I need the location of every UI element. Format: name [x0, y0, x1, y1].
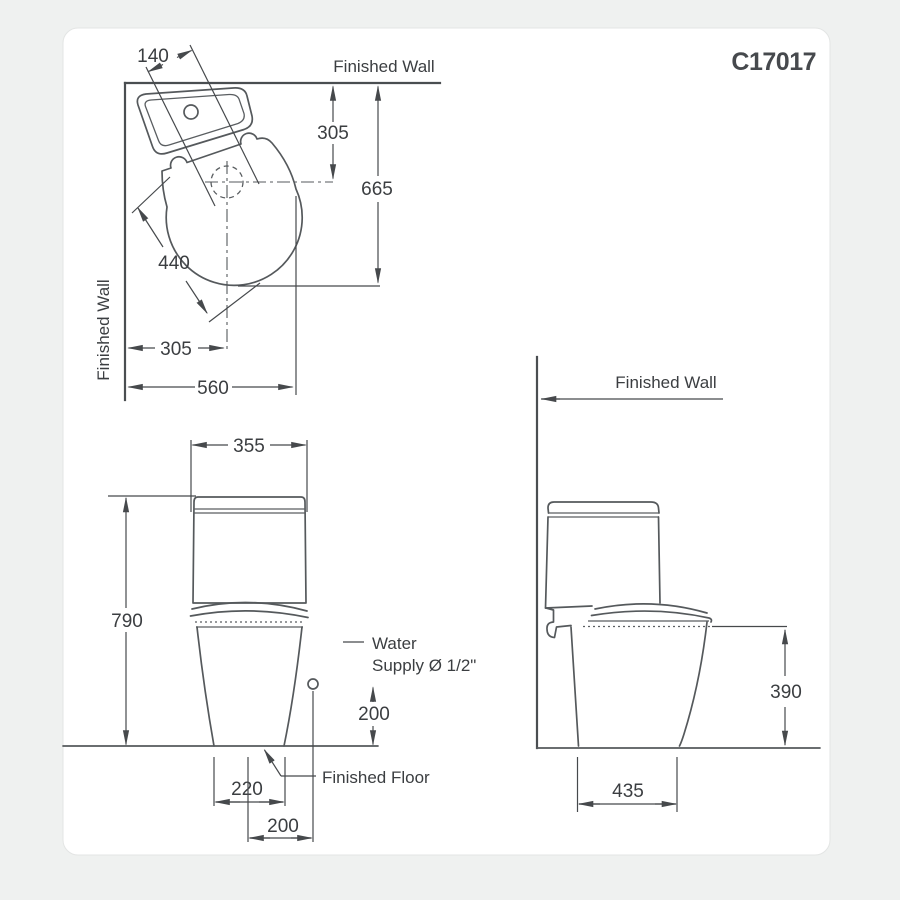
svg-text:390: 390 — [770, 682, 802, 703]
svg-text:140: 140 — [137, 46, 169, 67]
water-supply-label-line1: Water — [372, 634, 417, 653]
water-supply-label-line2: Supply Ø 1/2" — [372, 656, 476, 675]
technical-drawing: C17017 Finished Wall Finished Wall 140 — [0, 0, 900, 900]
finished-wall-label-side: Finished Wall — [615, 373, 716, 392]
svg-text:440: 440 — [158, 253, 190, 274]
svg-text:560: 560 — [197, 378, 229, 399]
spec-sheet-page: C17017 Finished Wall Finished Wall 140 — [0, 0, 900, 900]
svg-text:220: 220 — [231, 779, 263, 800]
svg-text:305: 305 — [160, 339, 192, 360]
svg-text:435: 435 — [612, 781, 644, 802]
drawing-card — [63, 28, 830, 855]
svg-text:355: 355 — [233, 436, 265, 457]
svg-text:790: 790 — [111, 611, 143, 632]
svg-text:665: 665 — [361, 179, 393, 200]
finished-wall-label-left: Finished Wall — [94, 279, 113, 380]
product-code: C17017 — [731, 48, 816, 76]
finished-floor-label: Finished Floor — [322, 768, 430, 787]
svg-text:305: 305 — [317, 123, 349, 144]
finished-wall-label-top: Finished Wall — [333, 57, 434, 76]
svg-text:200: 200 — [358, 704, 390, 725]
svg-text:200: 200 — [267, 816, 299, 837]
